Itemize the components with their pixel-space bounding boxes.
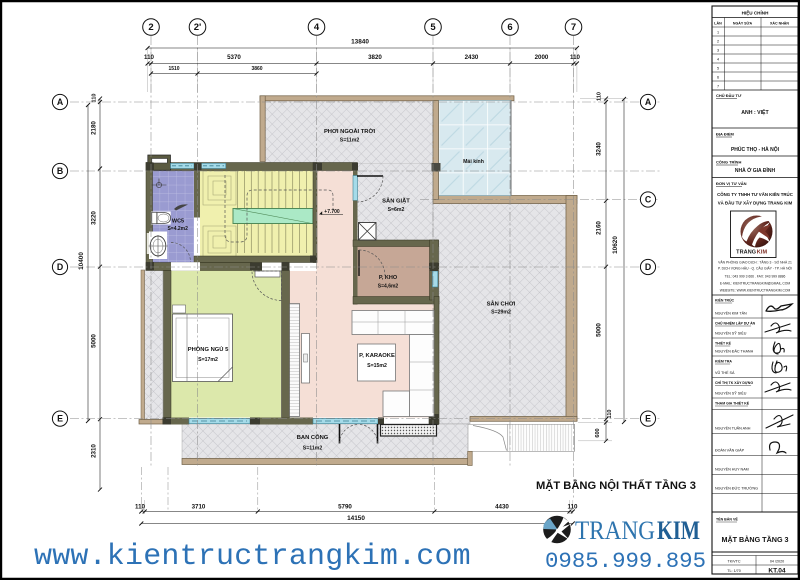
svg-text:3240: 3240	[596, 142, 603, 156]
svg-text:B: B	[57, 166, 63, 176]
svg-text:4: 4	[314, 22, 320, 33]
svg-text:HIỆU CHỈNH: HIỆU CHỈNH	[742, 9, 769, 16]
svg-text:3820: 3820	[368, 54, 382, 61]
svg-text:13840: 13840	[351, 39, 369, 46]
svg-text:2: 2	[717, 40, 719, 44]
svg-text:LẦN: LẦN	[714, 22, 722, 26]
svg-text:110: 110	[144, 54, 155, 61]
svg-text:S=17m2: S=17m2	[198, 357, 218, 363]
svg-text:NGUYỄN SỸ SIỆU: NGUYỄN SỸ SIỆU	[715, 331, 747, 336]
svg-text:3860: 3860	[251, 66, 262, 72]
svg-text:7: 7	[571, 22, 576, 33]
svg-text:MẶT BẰNG TẦNG 3: MẶT BẰNG TẦNG 3	[721, 534, 788, 544]
svg-text:2: 2	[148, 22, 153, 33]
svg-text:7: 7	[717, 85, 719, 89]
svg-text:A: A	[57, 97, 64, 107]
svg-text:3: 3	[717, 49, 719, 53]
svg-text:TK/VTC: TK/VTC	[727, 560, 740, 564]
svg-text:CHỦ ĐẦU TƯ: CHỦ ĐẦU TƯ	[716, 93, 742, 98]
svg-text:S=11m2: S=11m2	[303, 446, 323, 452]
svg-text:TEL: 043 999 3 666 . FAX: 04: TEL: 043 999 3 666 . FAX: 043 999 8886	[725, 275, 786, 279]
svg-text:3710: 3710	[192, 504, 206, 511]
svg-text:2160: 2160	[596, 221, 603, 235]
svg-text:ĐƠN VỊ TƯ VẤN: ĐƠN VỊ TƯ VẤN	[716, 181, 747, 186]
svg-text:5000: 5000	[596, 323, 603, 337]
svg-text:TL: 1/70: TL: 1/70	[727, 569, 741, 573]
svg-text:+7.700: +7.700	[324, 209, 340, 215]
svg-text:4430: 4430	[495, 504, 509, 511]
svg-text:E: E	[645, 414, 651, 424]
svg-text:PHÚC THỌ - HÀ NỘI: PHÚC THỌ - HÀ NỘI	[731, 145, 780, 153]
svg-text:600: 600	[595, 428, 601, 437]
svg-text:VĂN PHÒNG GIAO DỊCH : TẦNG 3 -: VĂN PHÒNG GIAO DỊCH : TẦNG 3 - SỐ NHÀ 21	[718, 260, 792, 265]
svg-text:ĐỊA ĐIỂM: ĐỊA ĐIỂM	[716, 132, 735, 137]
svg-text:MẶT BẰNG NỘI THẤT TẦNG 3: MẶT BẰNG NỘI THẤT TẦNG 3	[536, 479, 696, 492]
svg-text:WC5: WC5	[172, 219, 184, 225]
svg-text:04 /2020: 04 /2020	[770, 560, 784, 564]
svg-text:KIỂM TRA: KIỂM TRA	[715, 359, 732, 364]
svg-text:TRANG: TRANG	[736, 250, 756, 256]
svg-text:C: C	[645, 195, 652, 205]
svg-text:PHÒNG NGỦ 5: PHÒNG NGỦ 5	[188, 345, 229, 353]
svg-text:3220: 3220	[91, 211, 98, 225]
svg-text:NHÀ Ở GIA ĐÌNH: NHÀ Ở GIA ĐÌNH	[735, 166, 776, 174]
svg-text:110: 110	[568, 504, 579, 511]
svg-text:SÂN GIẶT: SÂN GIẶT	[382, 198, 410, 205]
svg-text:SÂN CHƠI: SÂN CHƠI	[487, 301, 516, 308]
svg-text:VÀ ĐẦU TƯ XÂY DỰNG TRANG KIM: VÀ ĐẦU TƯ XÂY DỰNG TRANG KIM	[718, 201, 793, 206]
svg-text:5370: 5370	[227, 54, 241, 61]
svg-text:5000: 5000	[91, 334, 98, 348]
svg-text:2180: 2180	[91, 121, 98, 135]
svg-text:P. DỊCH VỌNG HẬU - Q. CẦU GIẤY: P. DỊCH VỌNG HẬU - Q. CẦU GIẤY - TP. HÀ …	[718, 266, 792, 271]
svg-text:TÊN BẢN VẼ: TÊN BẢN VẼ	[716, 517, 738, 522]
svg-text:S=15m2: S=15m2	[367, 363, 387, 369]
svg-text:S=4.2m2: S=4.2m2	[167, 226, 188, 232]
svg-text:P, KARAOKE: P, KARAOKE	[359, 353, 395, 359]
svg-text:5790: 5790	[338, 504, 352, 511]
svg-text:P, KHO: P, KHO	[379, 275, 398, 281]
svg-text:KIẾN TRÚC: KIẾN TRÚC	[715, 298, 735, 303]
svg-text:www.kientructrangkim.com: www.kientructrangkim.com	[34, 540, 471, 574]
svg-text:CÔNG TRÌNH: CÔNG TRÌNH	[716, 160, 741, 165]
svg-text:10400: 10400	[78, 252, 85, 270]
svg-text:NGUYỄN ĐỨC TRƯỜNG: NGUYỄN ĐỨC TRƯỜNG	[715, 486, 758, 491]
svg-text:5: 5	[430, 22, 436, 33]
svg-text:NGUYỄN HUY NAM: NGUYỄN HUY NAM	[715, 467, 749, 472]
svg-text:110: 110	[135, 504, 146, 511]
svg-text:NGUYỄN TUẤN ANH: NGUYỄN TUẤN ANH	[715, 426, 751, 431]
svg-text:D: D	[645, 262, 651, 272]
svg-text:CHỈ THỊ TK XÂY DỰNG: CHỈ THỊ TK XÂY DỰNG	[715, 380, 753, 385]
svg-text:NGUYỄN ĐẮC THẠNH: NGUYỄN ĐẮC THẠNH	[715, 349, 754, 354]
svg-text:0985.999.895: 0985.999.895	[545, 549, 706, 574]
svg-text:Mái kính: Mái kính	[463, 159, 484, 165]
svg-text:XÁC NHẬN: XÁC NHẬN	[770, 21, 789, 26]
svg-text:S=29m2: S=29m2	[491, 310, 511, 316]
svg-text:KIM: KIM	[757, 250, 768, 256]
svg-text:D: D	[57, 262, 63, 272]
svg-text:2310: 2310	[91, 444, 98, 458]
svg-text:PHƠI NGOÀI TRỜI: PHƠI NGOÀI TRỜI	[324, 127, 376, 135]
svg-text:CÔNG TY TNHH TƯ VẤN KIẾN TRÚC: CÔNG TY TNHH TƯ VẤN KIẾN TRÚC	[717, 192, 794, 197]
svg-text:NGÀY SỬA: NGÀY SỬA	[733, 21, 753, 26]
svg-text:2': 2'	[194, 22, 202, 33]
svg-text:E: E	[57, 414, 63, 424]
svg-text:BAN CÔNG: BAN CÔNG	[297, 433, 329, 441]
svg-text:A: A	[645, 97, 652, 107]
svg-text:NGUYỄN SỸ SIỆU: NGUYỄN SỸ SIỆU	[715, 391, 747, 396]
svg-text:6: 6	[507, 22, 512, 33]
svg-text:110: 110	[607, 410, 613, 419]
svg-text:TRANG: TRANG	[575, 516, 655, 545]
svg-text:110: 110	[597, 92, 603, 101]
svg-text:NGUYỄN KIM TÂN: NGUYỄN KIM TÂN	[715, 311, 747, 316]
svg-text:1510: 1510	[168, 66, 179, 72]
svg-text:S=4,6m2: S=4,6m2	[378, 284, 399, 290]
svg-text:2000: 2000	[535, 54, 549, 61]
svg-text:10620: 10620	[612, 236, 619, 254]
svg-text:5: 5	[717, 67, 719, 71]
svg-text:4: 4	[717, 58, 719, 62]
svg-text:THIẾT KẾ: THIẾT KẾ	[715, 341, 732, 346]
svg-text:S=11m2: S=11m2	[340, 138, 360, 144]
svg-text:6: 6	[717, 76, 719, 80]
svg-text:S=6m2: S=6m2	[388, 207, 405, 213]
svg-text:110: 110	[92, 94, 98, 103]
svg-text:THAM GIA THIẾT KẾ: THAM GIA THIẾT KẾ	[715, 401, 750, 406]
svg-text:E-MAIL: KIENTRUCTRANGKIM@GMAIL: E-MAIL: KIENTRUCTRANGKIM@GMAIL.COM	[720, 282, 790, 286]
svg-text:ĐOÀN VĂN GIÁP: ĐOÀN VĂN GIÁP	[715, 449, 745, 453]
svg-text:KIM: KIM	[657, 516, 700, 545]
svg-text:1: 1	[717, 31, 719, 35]
svg-text:WEBSITE: WWW.KIENTRUCTRANGKIM.: WEBSITE: WWW.KIENTRUCTRANGKIM.COM	[720, 289, 791, 293]
svg-text:110: 110	[570, 54, 581, 61]
svg-text:14150: 14150	[347, 515, 365, 522]
svg-text:KT.04: KT.04	[768, 568, 786, 575]
svg-text:2430: 2430	[465, 54, 479, 61]
svg-text:ANH : VIỆT: ANH : VIỆT	[741, 108, 769, 116]
svg-text:CHỦ NHIỆM LẬP DỰ ÁN: CHỦ NHIỆM LẬP DỰ ÁN	[715, 321, 756, 326]
svg-text:VŨ THẾ SÁ: VŨ THẾ SÁ	[715, 370, 735, 375]
